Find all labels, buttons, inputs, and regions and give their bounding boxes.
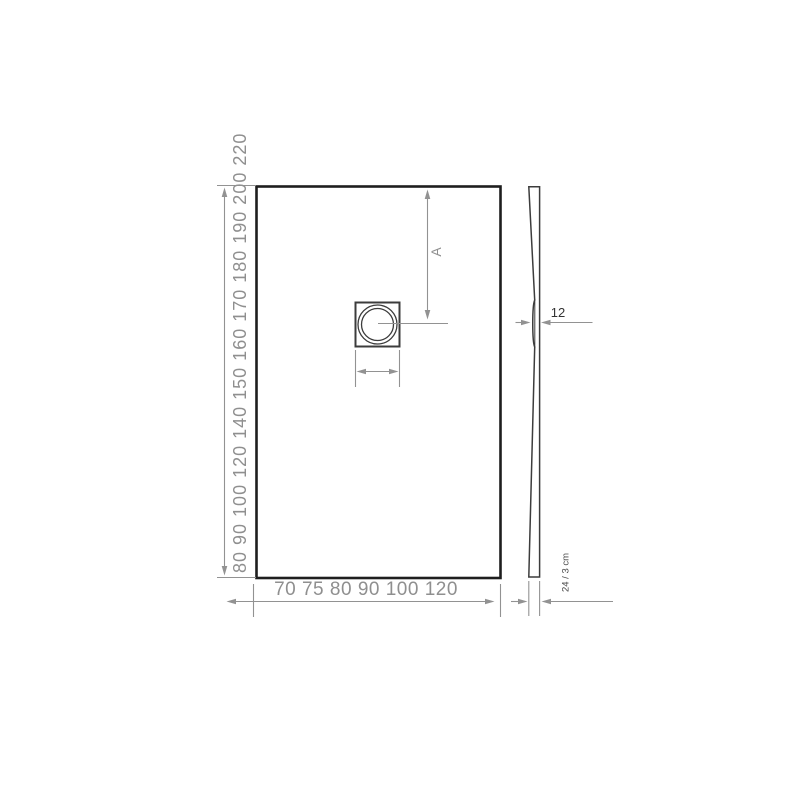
tray-height-label: 24 / 3 cm xyxy=(560,546,573,600)
arrow-up-icon xyxy=(222,188,228,198)
arrow-right-icon xyxy=(518,599,528,605)
drawing-linework xyxy=(0,0,800,800)
recess-thickness-label: 12 xyxy=(543,305,573,321)
width-scale-labels: 70 75 80 90 100 120 xyxy=(266,579,466,601)
arrow-left-icon xyxy=(227,599,237,605)
arrow-right-icon xyxy=(521,320,531,326)
arrow-right-icon xyxy=(485,599,495,605)
length-scale-labels: 80 90 100 120 140 150 160 170 180 190 20… xyxy=(228,207,252,573)
profile-outline xyxy=(529,187,540,577)
drain-offset-label: A xyxy=(428,237,444,267)
technical-drawing-canvas: 80 90 100 120 140 150 160 170 180 190 20… xyxy=(0,0,800,800)
plan-view-outline xyxy=(257,187,501,579)
arrow-down-icon xyxy=(222,566,228,576)
arrow-left-icon xyxy=(542,599,552,605)
side-profile-view xyxy=(529,187,540,577)
